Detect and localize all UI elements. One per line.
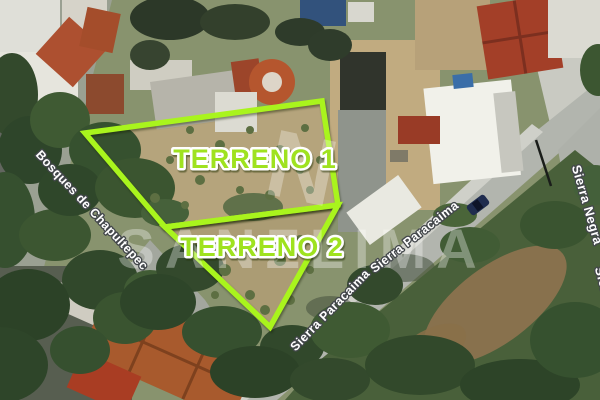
satellite-map: N SANZLIMA TERRENO 1 TERRENO 2 Bosques d… bbox=[0, 0, 600, 400]
parcel-label-terreno-1: TERRENO 1 bbox=[173, 144, 337, 174]
aerial-photo: N SANZLIMA TERRENO 1 TERRENO 2 Bosques d… bbox=[0, 0, 600, 400]
parcel-label-terreno-2: TERRENO 2 bbox=[180, 232, 344, 262]
